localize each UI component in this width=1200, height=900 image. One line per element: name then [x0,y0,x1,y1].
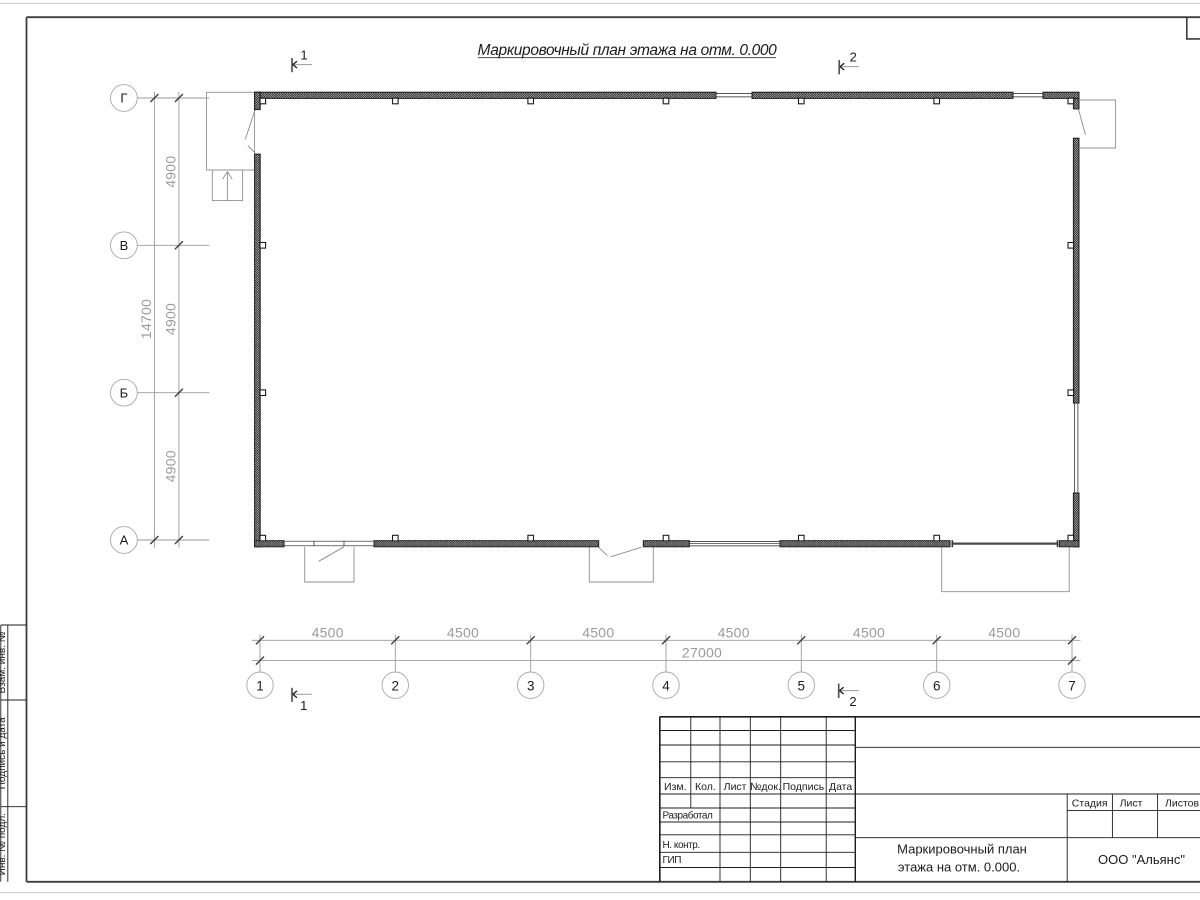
svg-text:1: 1 [300,48,307,63]
svg-text:А: А [120,533,129,548]
svg-text:1: 1 [256,678,264,693]
svg-text:4500: 4500 [853,624,885,640]
svg-text:4500: 4500 [582,624,614,640]
svg-text:Подпись и дата: Подпись и дата [0,717,8,789]
svg-text:№док.: №док. [750,781,781,793]
svg-text:4900: 4900 [162,450,178,482]
svg-text:7: 7 [1068,678,1076,693]
svg-text:Листов: Листов [1165,797,1200,809]
svg-text:5: 5 [798,678,806,693]
svg-text:4900: 4900 [162,156,178,188]
svg-text:Разработал: Разработал [663,810,714,822]
svg-text:Б: Б [120,385,129,400]
svg-text:4500: 4500 [447,624,479,640]
svg-text:В: В [120,238,129,253]
svg-text:этажа на отм. 0.000.: этажа на отм. 0.000. [898,859,1020,874]
svg-text:Кол.: Кол. [695,781,716,793]
svg-text:Маркировочный план: Маркировочный план [897,842,1027,857]
svg-text:2: 2 [392,678,400,693]
svg-text:1: 1 [300,698,307,713]
svg-text:Маркировочный план этажа на от: Маркировочный план этажа на отм. 0.000 [478,42,778,59]
svg-text:3: 3 [527,678,535,693]
svg-text:Изм.: Изм. [664,781,687,793]
svg-text:Взам. инв. №: Взам. инв. № [0,631,8,693]
svg-text:27000: 27000 [682,645,722,661]
svg-text:Лист: Лист [1120,797,1143,809]
svg-text:6: 6 [933,678,941,693]
svg-text:4900: 4900 [162,303,178,335]
svg-text:ООО "Альянс": ООО "Альянс" [1098,852,1185,867]
svg-text:Инв. № подл.: Инв. № подл. [0,813,8,875]
svg-text:4500: 4500 [312,624,344,640]
svg-text:Подпись: Подпись [783,781,825,793]
svg-text:4: 4 [662,678,670,693]
svg-text:ГИП: ГИП [663,855,682,866]
svg-text:4500: 4500 [718,624,750,640]
svg-text:Г: Г [120,91,127,106]
svg-text:14700: 14700 [138,299,154,339]
svg-text:4500: 4500 [988,624,1020,640]
svg-text:2: 2 [849,694,856,709]
svg-text:Стадия: Стадия [1072,797,1108,809]
svg-text:Дата: Дата [829,781,852,793]
svg-text:2: 2 [850,50,857,65]
svg-text:Н. контр.: Н. контр. [663,840,700,851]
svg-text:Лист: Лист [724,781,747,793]
